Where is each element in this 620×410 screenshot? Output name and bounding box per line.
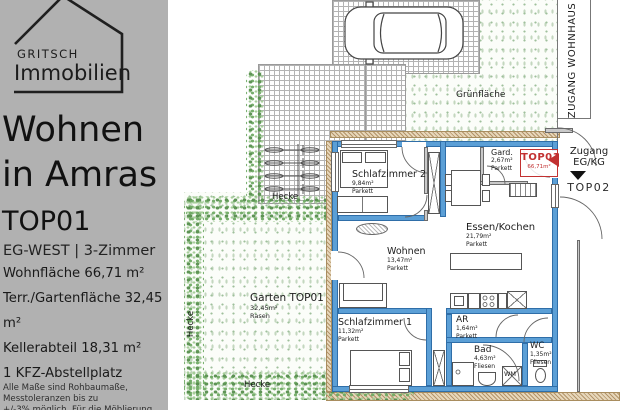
wall-living-bedroom1	[338, 308, 432, 314]
disclaimer: Alle Maße sind Rohbaumaße, Messtoleranze…	[3, 383, 168, 410]
brand-name-top: GRITSCH	[17, 47, 79, 61]
room-label-living: Wohnen 13,47m² Parkett	[387, 246, 426, 273]
shaft-icon	[433, 350, 445, 386]
hedge-strip-garden-top	[186, 196, 336, 222]
bed1-pillow-icon	[399, 352, 410, 366]
path-pavement-2	[365, 64, 406, 141]
fact-living-area: Wohnfläche 66,71 m²	[3, 261, 168, 286]
room-label-garderobe: Gard. 2,67m² Parkett	[491, 148, 513, 173]
cooktop-icon	[480, 293, 498, 309]
rug-icon	[356, 223, 388, 235]
stair-wall-stub	[545, 128, 573, 133]
bed2-pillow-icon	[342, 152, 362, 163]
sofa-seat-icon	[343, 283, 383, 301]
unit-facts: Wohnfläche 66,71 m² Terr./Gartenfläche 3…	[3, 261, 168, 386]
hedge-label-bottom: Hecke	[244, 380, 270, 390]
entry-arrow-icon	[548, 153, 559, 167]
dining-table-icon	[451, 170, 481, 206]
dining-chair4-icon	[482, 190, 490, 202]
hedge-strip-garden-left	[184, 196, 204, 400]
wall-bedroom1-east	[426, 308, 432, 386]
bath-sink-icon	[478, 372, 496, 386]
wall-right	[552, 141, 558, 392]
wall-bedroom2-south	[338, 215, 427, 221]
room-label-ar: AR 1,64m² Parkett	[456, 315, 478, 341]
green-area-label: Grünfläche	[456, 90, 505, 100]
room-label-wc: WC 1,35m² Fliesen	[530, 341, 552, 367]
exterior-wall-insulation-top	[330, 131, 560, 138]
dining-chair3-icon	[482, 174, 490, 186]
unit-subtitle: EG-WEST | 3-Zimmer	[3, 243, 155, 259]
wardrobe-icon	[509, 183, 537, 197]
room-label-bad: Bad 4,63m² Fliesen	[474, 345, 496, 371]
entry-egkg-label: Zugang EG/KG	[560, 147, 618, 168]
fridge-icon	[507, 291, 527, 309]
window-bedroom2-north	[341, 140, 397, 148]
page-title: Wohnen in Amras	[2, 108, 157, 198]
stair-core-wall	[577, 240, 580, 392]
kitchen-sink-basin-icon	[454, 296, 464, 306]
garden-label: Garten TOP01 32,45m² Rasen	[250, 292, 324, 320]
neighbor-unit-label: TOP02	[560, 181, 618, 194]
window-bedroom1-south	[349, 385, 409, 393]
wall-wc-west	[522, 343, 528, 386]
room-label-bedroom2: Schlafzimmer 2 9,84m² Parkett	[352, 169, 426, 196]
shower-icon	[452, 362, 474, 386]
room-label-bedroom1: Schlafzimmer 1 11,32m² Parkett	[338, 317, 412, 344]
door-gap-terrace	[331, 251, 339, 280]
dresser-icon	[337, 196, 388, 213]
bed2-pillow2-icon	[365, 152, 386, 163]
toilet-bowl-icon	[535, 368, 546, 383]
fact-cellar: Kellerabteil 18,31 m²	[3, 336, 168, 361]
hedge-strip-vertical-path	[246, 70, 264, 202]
hedge-label-left: Hecke	[183, 302, 199, 346]
room-label-dining-kitchen: Essen/Kochen 21,79m² Parkett	[466, 222, 535, 249]
info-panel: GRITSCH Immobilien Wohnen in Amras TOP01…	[0, 0, 168, 410]
unit-name: TOP01	[2, 206, 90, 237]
fact-terrace-garden: Terr./Gartenfläche 32,45 m²	[3, 286, 168, 336]
kitchen-counter-icon	[468, 293, 480, 309]
hall-closet-icon	[428, 152, 440, 214]
kitchen-counter2-icon	[498, 293, 507, 309]
house-entrance-label: ZUGANG WOHNHAUS	[554, 0, 592, 120]
hedge-label-top: Hecke	[272, 192, 298, 202]
brand-name-bottom: Immobilien	[14, 61, 131, 85]
bed1-pillow2-icon	[399, 368, 410, 382]
washer-label: WM	[504, 370, 516, 378]
door-gap-north-entry	[402, 142, 426, 147]
window-bedroom2-west	[331, 152, 339, 192]
parking-pavement	[332, 0, 480, 74]
floorplan-sheet: Schlafzimmer 2 9,84m² Parkett Gard. 2,67…	[0, 0, 620, 410]
window-dining-east	[551, 184, 559, 208]
top02-arrow-icon	[570, 171, 586, 180]
kitchen-island-icon	[450, 253, 522, 270]
